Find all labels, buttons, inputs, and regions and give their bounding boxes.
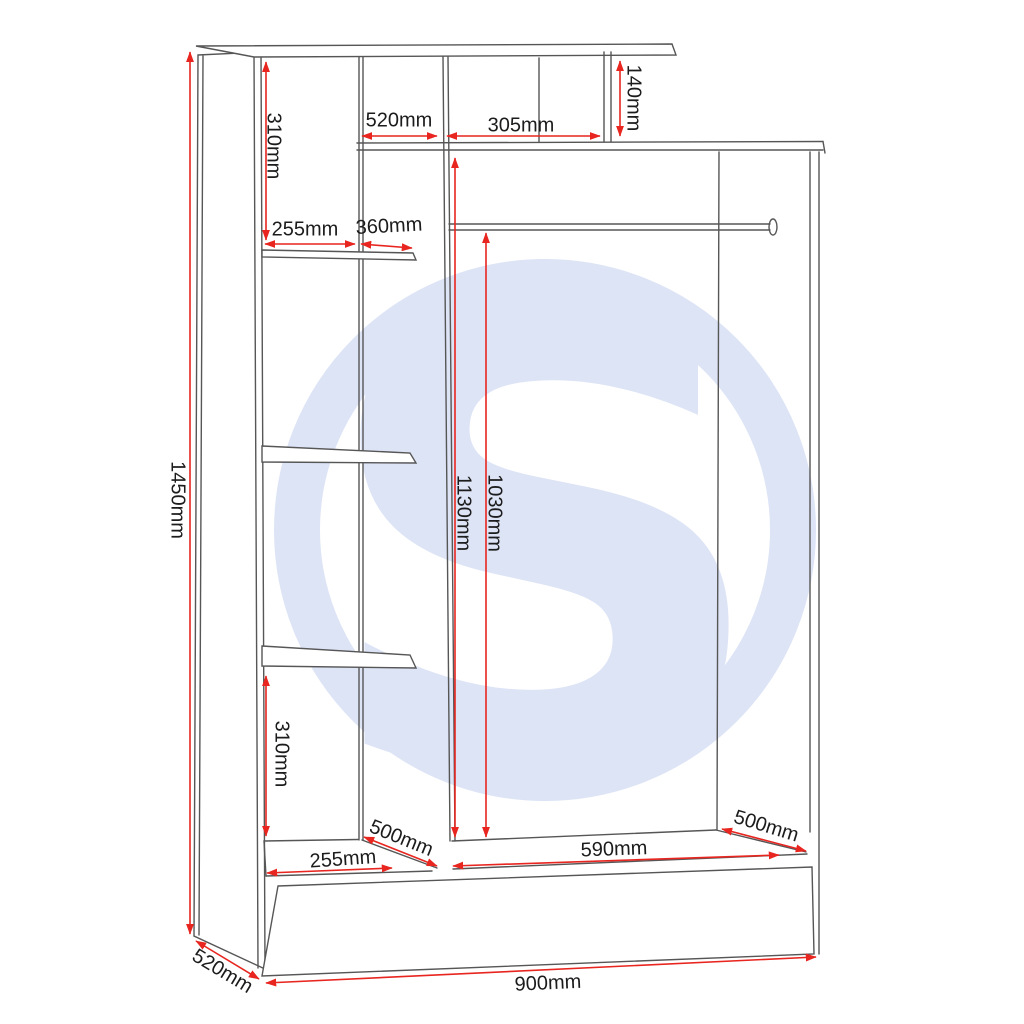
dim-label-hanging-height-total: 1130mm [453, 475, 475, 551]
dim-label-shelf-depth: 360mm [355, 214, 423, 239]
dim-label-top-shelf-depth: 520mm [366, 109, 433, 131]
dim-label-lower-left-gap: 310mm [271, 721, 293, 788]
dim-label-overall-width: 900mm [514, 971, 582, 996]
wardrobe-dimension-drawing: S [0, 0, 1024, 1024]
dim-label-shelf-column-width: 255mm [272, 218, 339, 240]
hanging-compartment-top [357, 142, 825, 154]
dim-label-top-shelf-height: 140mm [623, 65, 645, 132]
base-plinth [262, 867, 814, 976]
left-side-panel [194, 52, 265, 969]
dim-label-top-shelf-width: 305mm [488, 114, 555, 136]
dim-label-overall-height: 1450mm [167, 461, 189, 539]
dim-label-rail-drop-height: 1030mm [484, 474, 506, 552]
dim-label-hanging-floor-width: 590mm [580, 837, 647, 861]
watermark-letter: S [315, 174, 776, 919]
diagram-canvas: S [0, 0, 1024, 1024]
dim-label-upper-left-gap: 310mm [263, 113, 285, 180]
dim-label-left-floor-width: 255mm [309, 846, 377, 873]
